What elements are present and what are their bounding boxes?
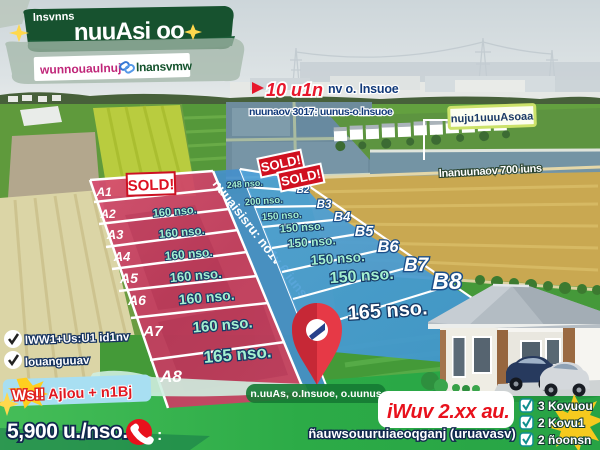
svg-text:A3: A3 (106, 227, 124, 242)
svg-text:B7: B7 (404, 255, 430, 276)
svg-text:nuuAsi oo: nuuAsi oo (74, 17, 185, 46)
svg-text:2 ñoonsn: 2 ñoonsn (538, 433, 591, 447)
svg-text:B4: B4 (334, 209, 351, 224)
svg-text:B8: B8 (432, 268, 462, 294)
svg-text:B5: B5 (355, 224, 374, 240)
svg-text:Ws!!: Ws!! (12, 386, 45, 404)
svg-text::: : (157, 427, 162, 444)
svg-text:lnansvmw: lnansvmw (136, 59, 193, 74)
svg-text:A1: A1 (95, 185, 112, 199)
svg-text:n.uuAs, o.Insuoe, o.uunus: n.uuAs, o.Insuoe, o.uunus (250, 388, 381, 400)
svg-text:A7: A7 (142, 323, 163, 340)
svg-text:nv o. lnsuoe: nv o. lnsuoe (328, 82, 399, 96)
svg-text:AjIou + n1Bj: AjIou + n1Bj (48, 384, 133, 403)
svg-text:3 Kovuou: 3 Kovuou (538, 399, 593, 413)
svg-text:10 u1n: 10 u1n (266, 80, 323, 100)
svg-text:A8: A8 (159, 367, 182, 386)
svg-text:SOLD!: SOLD! (127, 176, 174, 195)
svg-text:louanguuav: louanguuav (25, 355, 91, 369)
svg-text:B6: B6 (377, 238, 399, 256)
svg-text:A4: A4 (113, 249, 131, 264)
svg-text:A6: A6 (127, 292, 146, 308)
svg-text:ñauwsouuruiaeoqganj (uruavasv): ñauwsouuruiaeoqganj (uruavasv) (308, 426, 515, 441)
svg-text:A2: A2 (99, 207, 116, 221)
svg-text:iWuv 2.xx au.: iWuv 2.xx au. (387, 401, 509, 423)
svg-text:lnsvnns: lnsvnns (33, 11, 75, 24)
svg-text:wunnouaulnuj: wunnouaulnuj (39, 61, 122, 77)
svg-text:5,900 u./nso.: 5,900 u./nso. (7, 420, 128, 443)
svg-text:B3: B3 (317, 199, 332, 211)
svg-text:nuunaov 3017: uunus-o.lnsuoe: nuunaov 3017: uunus-o.lnsuoe (249, 106, 393, 118)
svg-text:2 Kovu1: 2 Kovu1 (538, 416, 585, 430)
svg-text:A5: A5 (119, 270, 138, 286)
